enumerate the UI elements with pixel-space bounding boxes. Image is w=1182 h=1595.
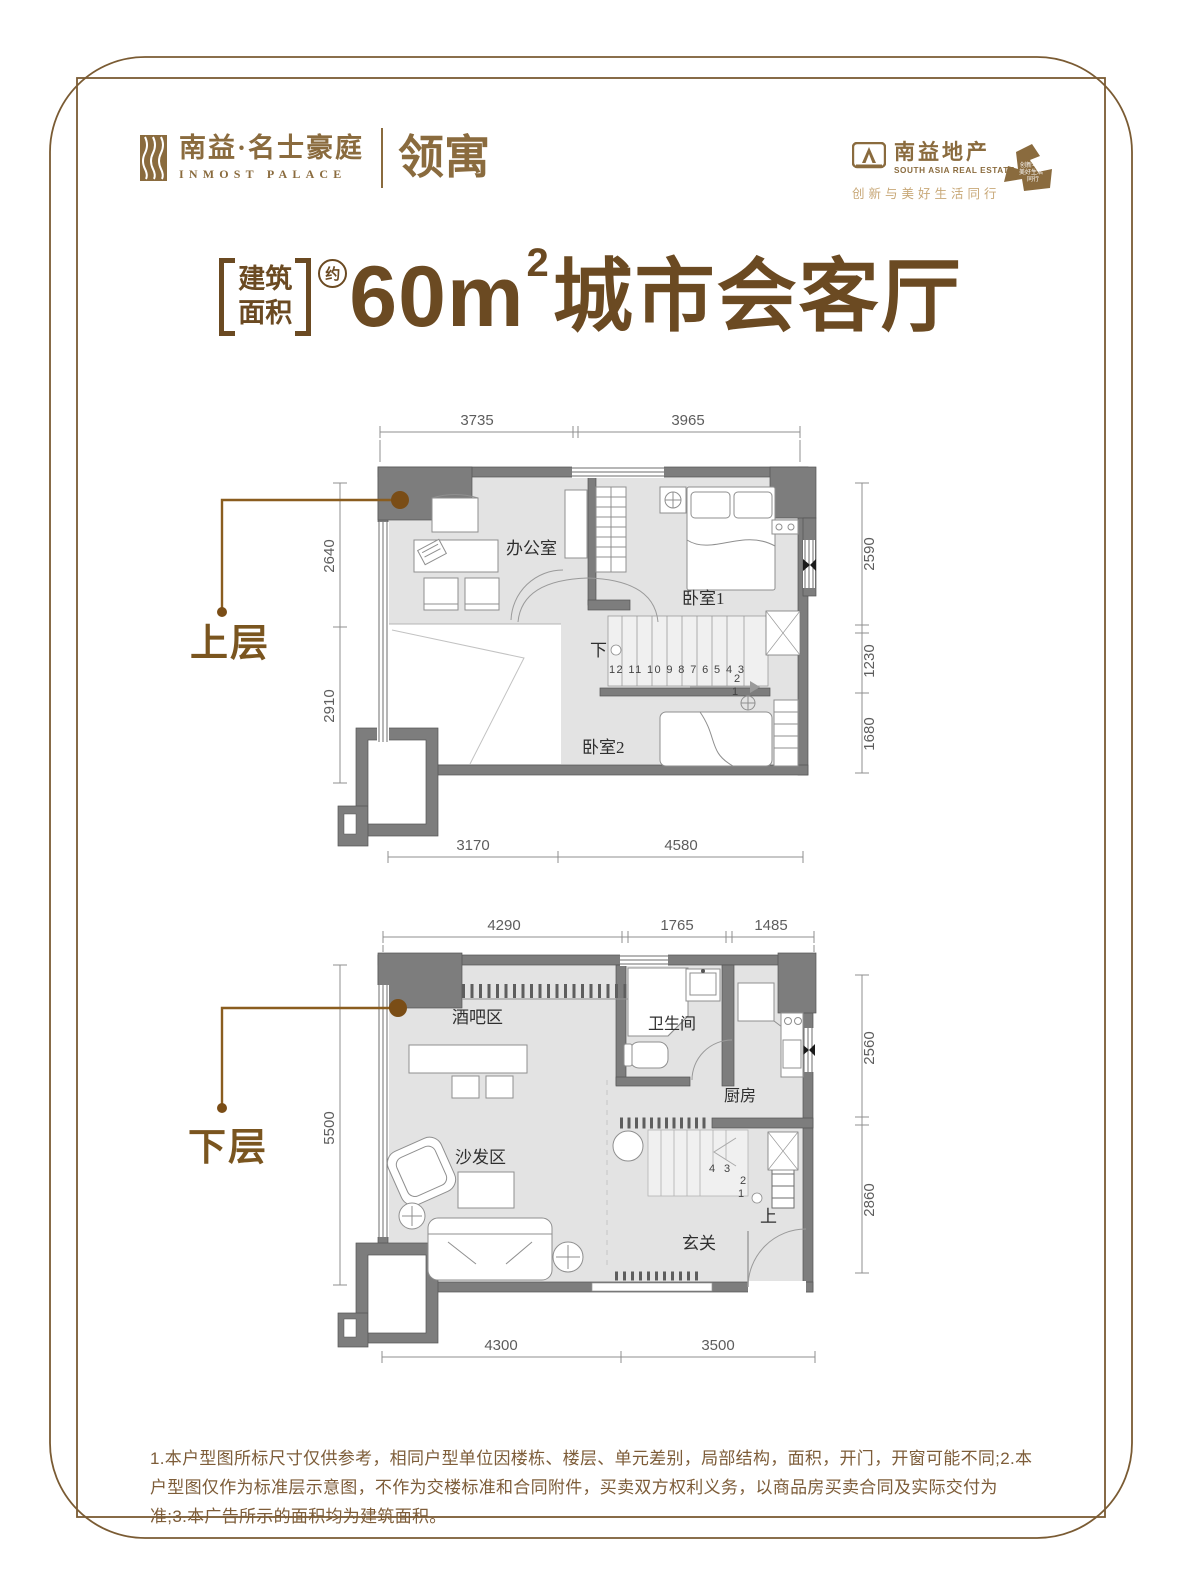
threshold: [592, 1283, 712, 1291]
room-label-office: 办公室: [506, 539, 557, 558]
dim-label: 2910: [321, 689, 338, 722]
round-table: [613, 1131, 643, 1161]
title-headline: 城市会客厅: [553, 257, 963, 337]
bracket-left-icon: [219, 258, 235, 336]
bracket-right-icon: [295, 258, 311, 336]
logo-divider: [381, 128, 383, 188]
main-title: 建筑 面积 约 60m 2 城市会客厅: [0, 254, 1182, 340]
dim-label: 4290: [487, 917, 520, 934]
dim-label: 3965: [671, 412, 704, 429]
room-label-bedroom1: 卧室1: [682, 589, 725, 608]
dim-label: 5500: [321, 1111, 338, 1144]
stair-step2: 2: [740, 1175, 746, 1187]
stair-step2: 2: [734, 673, 740, 685]
stair-run-numbers: 12 11 10 9 8 7 6 5 4 3: [609, 664, 744, 676]
dim-label: 4580: [664, 837, 697, 854]
lower-lobby-notch: [344, 1319, 356, 1337]
product-name: 领寓: [398, 135, 490, 181]
dim-label: 1765: [660, 917, 693, 934]
room-label-bathroom: 卫生间: [648, 1015, 696, 1033]
dim-label: 3170: [456, 837, 489, 854]
brand-name-en: INMOST PALACE: [179, 167, 364, 182]
room-label-foyer: 玄关: [682, 1234, 716, 1253]
dim-label: 1485: [754, 917, 787, 934]
bracket-line1: 建筑: [238, 263, 292, 297]
dim-label: 3500: [701, 1337, 734, 1354]
dim-label: 4300: [484, 1337, 517, 1354]
seal-text-2: 美好生活: [1019, 168, 1043, 176]
upper-callout: 上层: [190, 491, 409, 665]
upper-lobby-notch: [344, 814, 356, 834]
seal-icon: 创新与 美好生活 同行: [1002, 144, 1056, 196]
dim-label: 1680: [861, 717, 878, 750]
brand-name-cn: 南益·名士豪庭: [179, 134, 364, 162]
room-label-kitchen: 厨房: [724, 1087, 756, 1105]
lower-lobby-inner: [368, 1255, 426, 1333]
stair-step4: 4: [709, 1163, 715, 1175]
dim-label: 2560: [861, 1031, 878, 1064]
developer-name-en: SOUTH ASIA REAL ESTATE: [894, 166, 1015, 175]
stair-step1: 1: [732, 686, 738, 698]
lower-floor-label: 下层: [188, 1127, 268, 1169]
lower-callout: 下层: [188, 999, 407, 1169]
entrance-opening: [748, 1281, 806, 1293]
brand-logo-right: 南益地产 SOUTH ASIA REAL ESTATE 创新与美好生活同行 创新…: [852, 142, 1062, 202]
room-label-bedroom2: 卧室2: [582, 738, 625, 757]
upper-plan: 12 11 10 9 8 7 6 5 4 3 2 1 下: [190, 412, 878, 863]
dim-label: 1230: [861, 644, 878, 677]
lower-plan: 4 3 2 1 上: [188, 917, 878, 1363]
plan-canvas: 12 11 10 9 8 7 6 5 4 3 2 1 下: [0, 0, 1182, 1595]
stair-step3: 3: [724, 1163, 730, 1175]
brand-logo-left: 南益·名士豪庭 INMOST PALACE 领寓: [140, 128, 490, 188]
disclaimer-text: 1.本户型图所标尺寸仅供参考，相同户型单位因楼栋、楼层、单元差别，局部结构，面积…: [150, 1444, 1034, 1532]
dim-label: 3735: [460, 412, 493, 429]
upper-floor-label: 上层: [190, 623, 270, 665]
stair-step1: 1: [738, 1188, 744, 1200]
room-label-sofa: 沙发区: [455, 1148, 506, 1167]
dim-label: 2590: [861, 537, 878, 570]
developer-name-cn: 南益地产: [894, 142, 1015, 163]
stair-direction-label: 上: [760, 1207, 777, 1226]
dim-label: 2860: [861, 1183, 878, 1216]
wave-logo-icon: [140, 135, 167, 181]
room-label-bar: 酒吧区: [452, 1008, 503, 1027]
approx-badge: 约: [318, 259, 347, 288]
stair-direction-label: 下: [590, 641, 607, 660]
seal-text-3: 同行: [1027, 175, 1039, 183]
area-value: 60m: [349, 254, 524, 340]
poster-page: 12 11 10 9 8 7 6 5 4 3 2 1 下: [0, 0, 1182, 1595]
area-bracket: 建筑 面积: [219, 258, 311, 336]
bracket-line2: 面积: [238, 297, 292, 331]
upper-lobby-inner: [368, 740, 426, 824]
area-superscript: 2: [526, 241, 548, 286]
seal-text-1: 创新与: [1020, 161, 1038, 169]
dim-label: 2640: [321, 539, 338, 572]
developer-logo-icon: [852, 142, 886, 170]
